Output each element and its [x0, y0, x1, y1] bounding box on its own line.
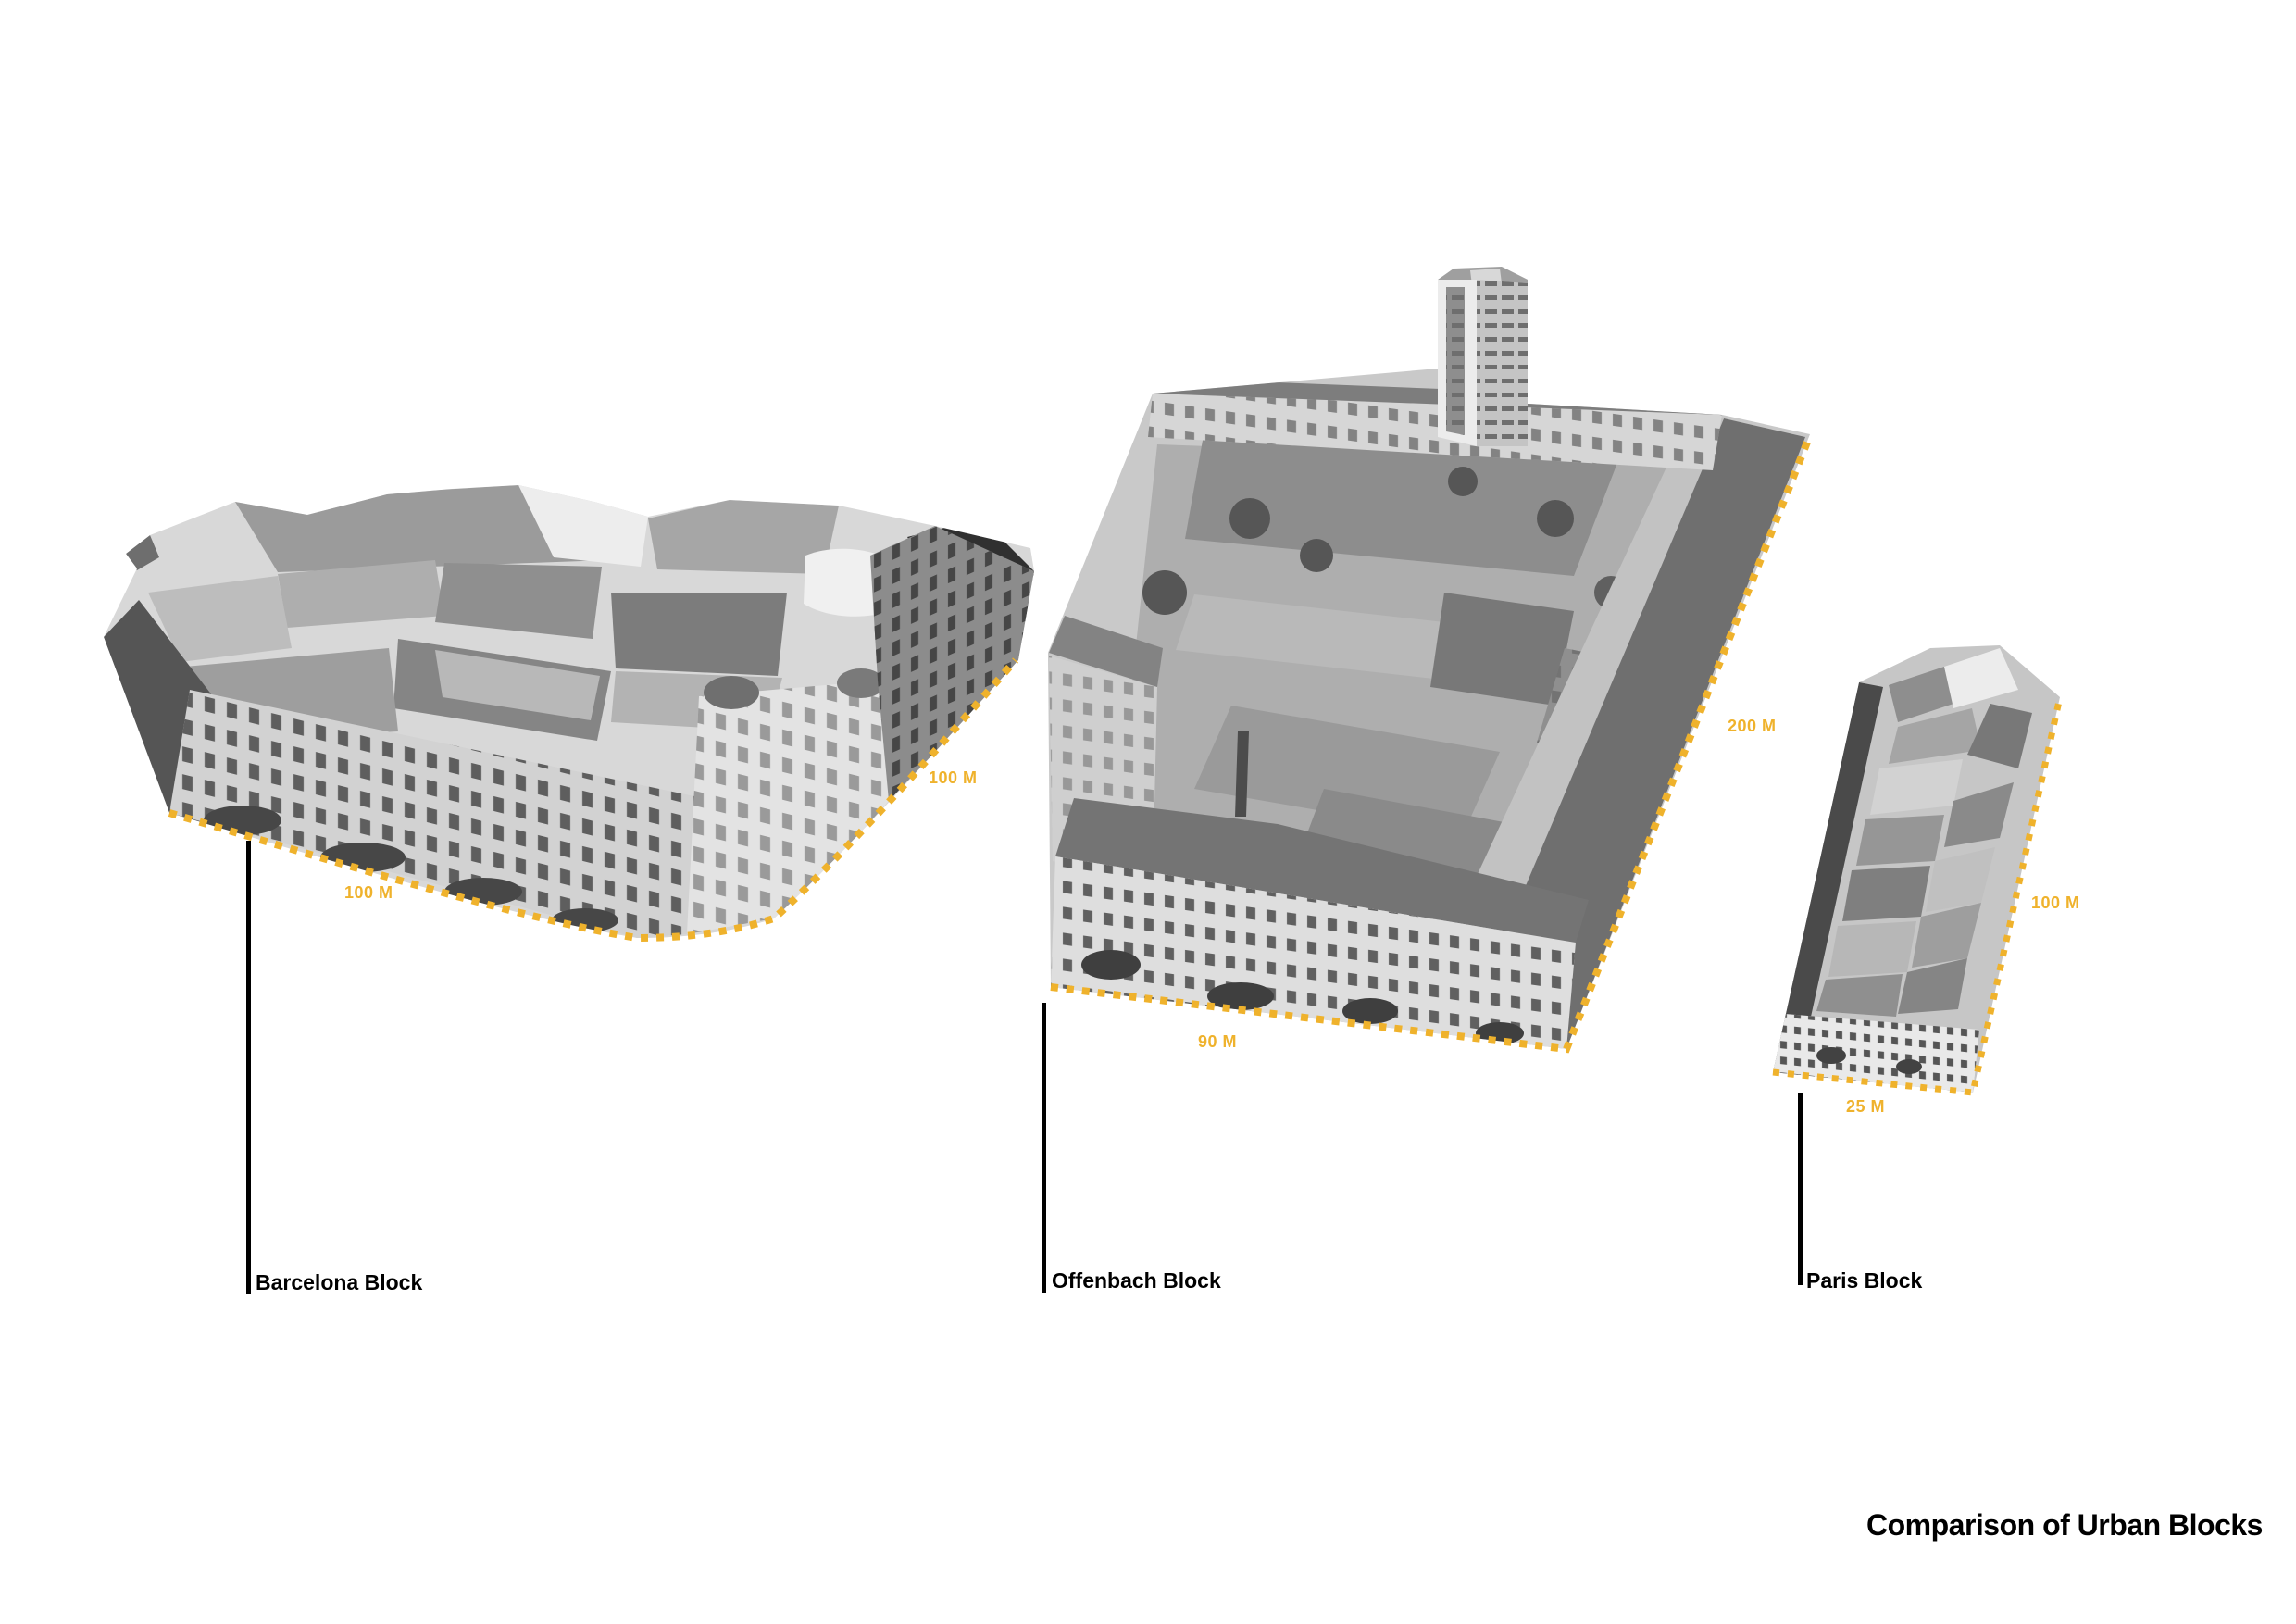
- paris-block-illustration: [1759, 630, 2074, 1111]
- paris-bottom-dimension-label: 25 M: [1846, 1097, 1885, 1117]
- offenbach-block-label: Offenbach Block: [1052, 1268, 1221, 1293]
- barcelona-corner-building: [687, 668, 889, 934]
- paris-block-body: [1759, 630, 2074, 1111]
- barcelona-side-dimension-label: 100 M: [929, 768, 978, 788]
- barcelona-right-facade: [870, 526, 1034, 801]
- offenbach-side-dimension-label: 200 M: [1728, 717, 1777, 736]
- page-title: Comparison of Urban Blocks: [1866, 1508, 2263, 1543]
- barcelona-leader-line: [246, 841, 251, 1294]
- barcelona-block-label: Barcelona Block: [256, 1270, 422, 1295]
- barcelona-block-illustration: [93, 472, 1083, 954]
- offenbach-block-body: [1037, 250, 1833, 1065]
- barcelona-block-body: [93, 472, 1083, 954]
- barcelona-bottom-dimension-label: 100 M: [344, 883, 393, 903]
- paris-block-label: Paris Block: [1806, 1268, 1922, 1293]
- paris-side-dimension-label: 100 M: [2031, 893, 2080, 913]
- comparison-diagram: 100 M 100 M 200 M 90 M 100 M 25 M Barcel…: [0, 0, 2296, 1624]
- paris-leader-line: [1798, 1093, 1803, 1285]
- offenbach-block-illustration: [1037, 250, 1833, 1065]
- offenbach-bottom-dimension-label: 90 M: [1198, 1032, 1237, 1052]
- offenbach-tower: [1438, 267, 1528, 446]
- offenbach-leader-line: [1042, 1003, 1046, 1293]
